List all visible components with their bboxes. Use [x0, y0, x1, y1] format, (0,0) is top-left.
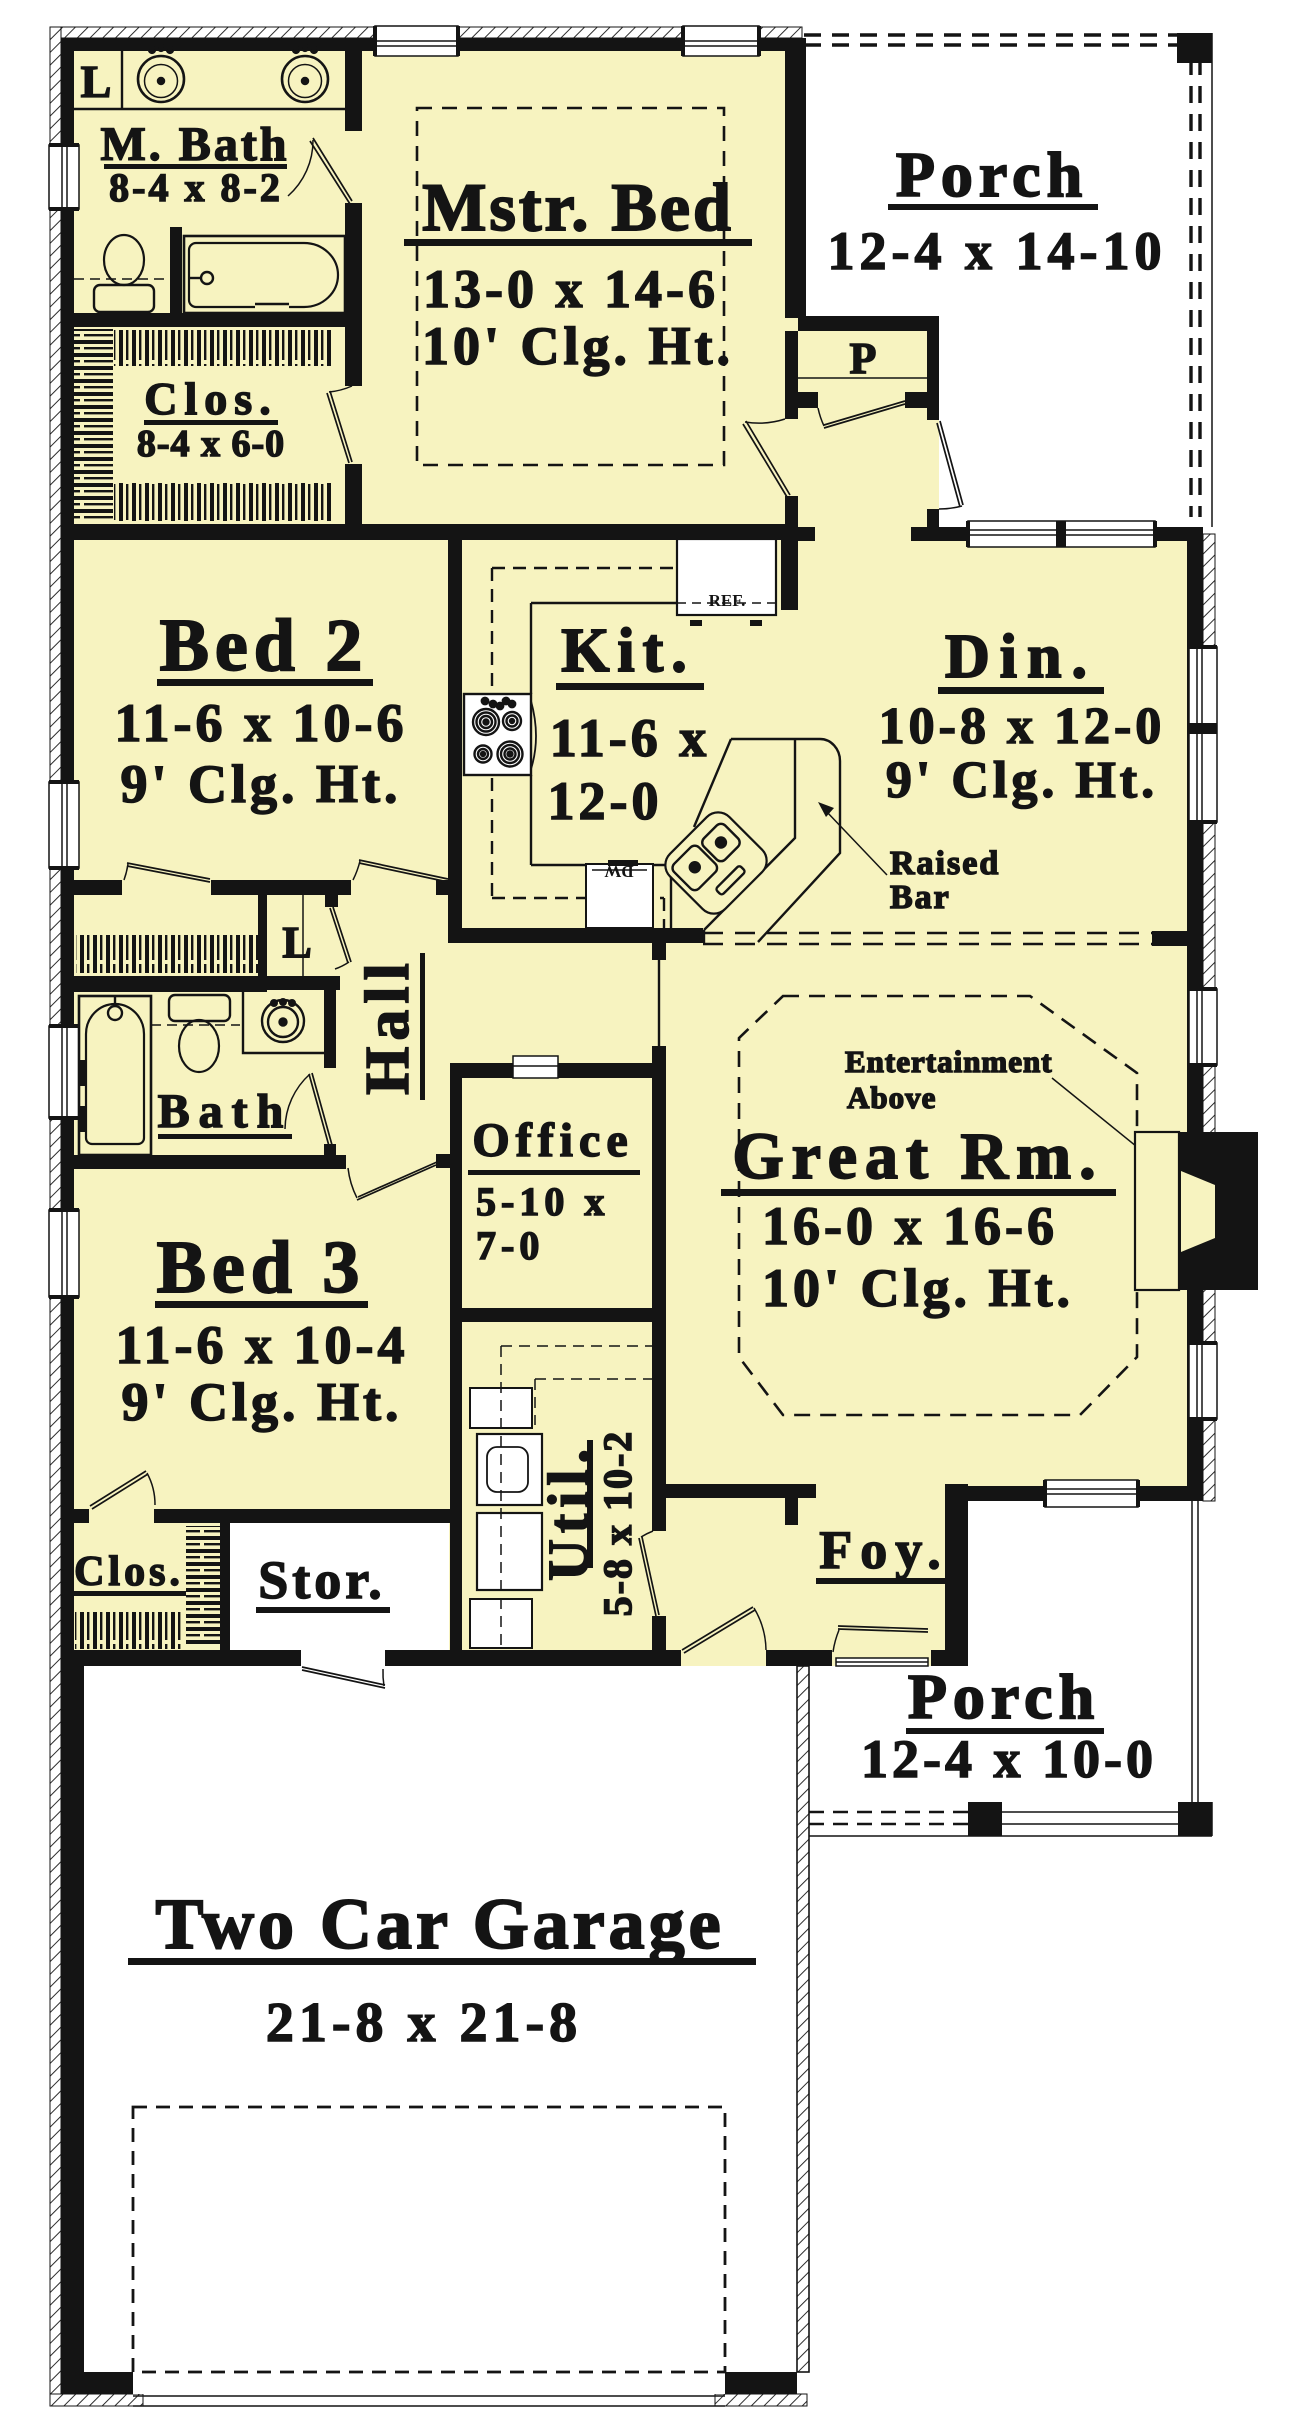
svg-text:7-0: 7-0: [476, 1223, 544, 1268]
svg-text:9' Clg. Ht.: 9' Clg. Ht.: [122, 1372, 403, 1432]
svg-text:9' Clg. Ht.: 9' Clg. Ht.: [121, 754, 402, 814]
svg-text:Bed 2: Bed 2: [160, 605, 369, 687]
svg-text:10' Clg. Ht.: 10' Clg. Ht.: [762, 1258, 1074, 1318]
svg-text:Bath: Bath: [158, 1085, 293, 1138]
svg-text:DW: DW: [604, 862, 633, 881]
svg-text:L: L: [81, 56, 112, 107]
svg-text:Foy.: Foy.: [819, 1520, 949, 1580]
svg-text:Mstr. Bed: Mstr. Bed: [422, 169, 734, 245]
svg-text:5-8 x 10-2: 5-8 x 10-2: [595, 1430, 640, 1617]
svg-text:Above: Above: [847, 1080, 936, 1115]
svg-text:16-0 x 16-6: 16-0 x 16-6: [762, 1196, 1058, 1256]
svg-text:10' Clg. Ht.: 10' Clg. Ht.: [422, 316, 734, 376]
svg-text:21-8 x 21-8: 21-8 x 21-8: [266, 1992, 582, 2054]
svg-text:M. Bath: M. Bath: [101, 118, 290, 171]
svg-text:8-4 x 6-0: 8-4 x 6-0: [137, 423, 285, 465]
svg-text:L: L: [282, 918, 311, 967]
svg-text:11-6 x 10-4: 11-6 x 10-4: [116, 1315, 409, 1375]
svg-text:12-4 x 10-0: 12-4 x 10-0: [861, 1729, 1157, 1789]
svg-text:Porch: Porch: [908, 1661, 1100, 1732]
svg-text:Clos.: Clos.: [74, 1549, 184, 1595]
svg-text:Great Rm.: Great Rm.: [732, 1120, 1103, 1193]
svg-text:Din.: Din.: [945, 623, 1097, 691]
svg-text:Two Car Garage: Two Car Garage: [155, 1884, 724, 1964]
svg-text:Bar: Bar: [890, 879, 951, 916]
svg-text:Stor.: Stor.: [258, 1550, 386, 1610]
svg-text:Bed 3: Bed 3: [157, 1227, 366, 1309]
svg-text:5-10 x: 5-10 x: [476, 1179, 609, 1224]
svg-text:Raised: Raised: [890, 845, 1000, 882]
svg-text:Entertainment: Entertainment: [845, 1044, 1053, 1079]
svg-text:9' Clg. Ht.: 9' Clg. Ht.: [886, 752, 1158, 809]
svg-text:10-8 x 12-0: 10-8 x 12-0: [879, 698, 1166, 755]
svg-text:P: P: [850, 334, 877, 383]
svg-text:REF.: REF.: [709, 591, 746, 610]
svg-text:13-0 x 14-6: 13-0 x 14-6: [423, 259, 719, 319]
svg-text:11-6 x: 11-6 x: [550, 708, 711, 768]
svg-text:Office: Office: [472, 1114, 633, 1167]
svg-text:Kit.: Kit.: [561, 617, 695, 685]
svg-text:12-0: 12-0: [548, 771, 663, 831]
svg-text:12-4 x 14-10: 12-4 x 14-10: [828, 221, 1167, 281]
svg-text:Clos.: Clos.: [144, 373, 277, 424]
svg-text:11-6 x 10-6: 11-6 x 10-6: [115, 693, 408, 753]
svg-text:Porch: Porch: [896, 139, 1088, 210]
svg-text:Hall: Hall: [354, 957, 422, 1095]
svg-text:8-4 x 8-2: 8-4 x 8-2: [109, 165, 283, 210]
